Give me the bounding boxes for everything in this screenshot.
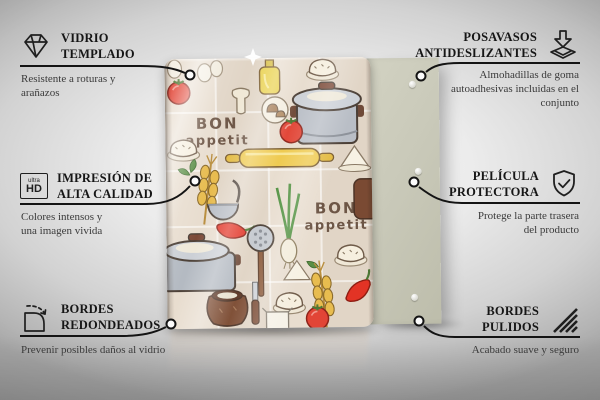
clay-bag-art: [354, 179, 374, 219]
arrow-down-tray-icon: [546, 28, 580, 62]
callout-polished-edges: BORDES PULIDOS: [430, 303, 580, 336]
svg-text:BON: BON: [315, 199, 358, 218]
callout-title: BORDES REDONDEADOS: [61, 301, 179, 334]
svg-text:BON: BON: [196, 114, 239, 133]
knife-art: [252, 282, 260, 324]
ultra-hd-icon: ultra HD: [20, 173, 48, 199]
callout-tempered-glass: VIDRIO TEMPLADO: [20, 30, 170, 63]
rounded-corner-icon: [18, 300, 52, 334]
callout-description: Prevenir posibles daños al vidrio: [21, 344, 241, 358]
callout-antislip-coasters: POSAVASOS ANTIDESLIZANTES: [400, 28, 580, 62]
shield-check-icon: [548, 168, 580, 200]
callout-protective-film: PELÍCULA PROTECTORA: [420, 168, 580, 201]
glass-board: BON appetit: [164, 57, 373, 329]
rubber-pad: [411, 294, 418, 301]
rubber-pad: [409, 81, 416, 88]
callout-description: Acabado suave y seguro: [359, 344, 579, 358]
mushrooms-art: [262, 97, 288, 123]
product-infographic: BON appetit: [0, 0, 600, 400]
callout-description: Resistente a roturas y arañazos: [21, 73, 131, 101]
callout-description: Colores intensos y una imagen vivida: [21, 211, 117, 239]
diamond-icon: [20, 32, 52, 60]
callout-rounded-edges: BORDES REDONDEADOS: [18, 300, 188, 334]
callout-title: POSAVASOS ANTIDESLIZANTES: [405, 29, 537, 62]
callout-title: VIDRIO TEMPLADO: [61, 30, 163, 63]
callout-title: BORDES PULIDOS: [467, 303, 539, 336]
callout-description: Almohadillas de goma autoadhesivas inclu…: [451, 69, 579, 110]
callout-description: Protege la parte trasera del producto: [467, 210, 579, 238]
diagonal-hatch-icon: [548, 303, 580, 335]
callout-title: IMPRESIÓN DE ALTA CALIDAD: [57, 170, 169, 203]
svg-text:appetit: appetit: [305, 218, 369, 234]
board-artwork: BON appetit: [164, 57, 373, 329]
clay-jug-art: [207, 290, 248, 326]
callout-title: PELÍCULA PROTECTORA: [443, 168, 539, 201]
callout-print-quality: ultra HD IMPRESIÓN DE ALTA CALIDAD: [20, 170, 180, 203]
